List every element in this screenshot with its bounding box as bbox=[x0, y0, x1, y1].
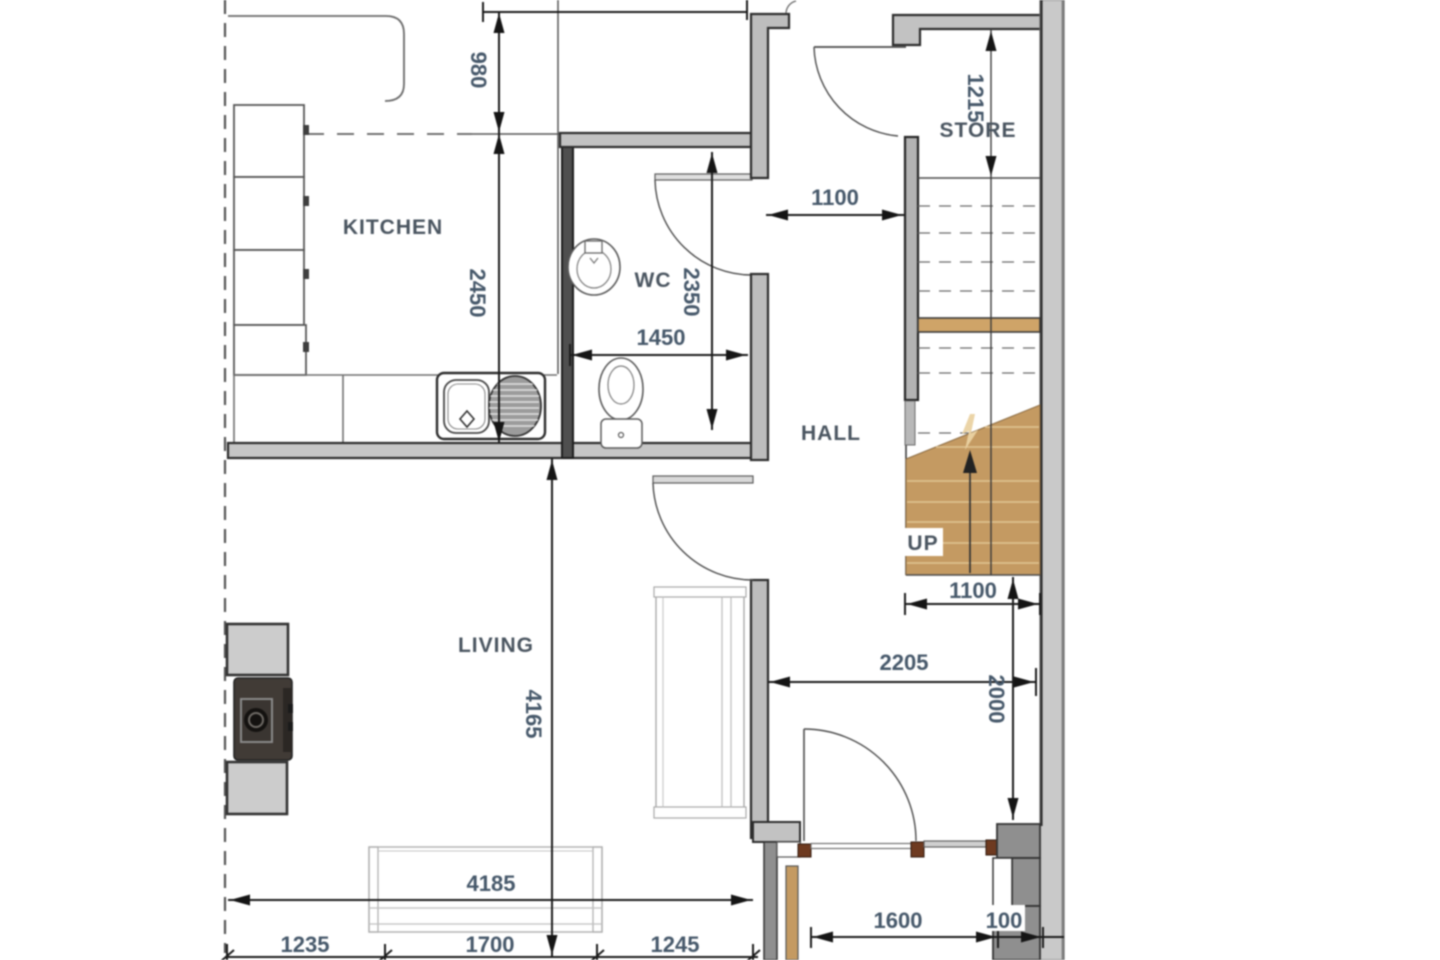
svg-text:WC: WC bbox=[635, 269, 672, 292]
svg-text:1600: 1600 bbox=[874, 908, 923, 933]
svg-text:100: 100 bbox=[986, 908, 1023, 933]
svg-text:4165: 4165 bbox=[521, 690, 546, 739]
svg-text:LIVING: LIVING bbox=[458, 634, 534, 657]
svg-text:2205: 2205 bbox=[880, 650, 929, 675]
svg-text:1215: 1215 bbox=[963, 74, 988, 123]
svg-text:1700: 1700 bbox=[466, 932, 515, 957]
svg-text:2350: 2350 bbox=[679, 268, 704, 317]
svg-text:1245: 1245 bbox=[651, 932, 700, 957]
svg-text:HALL: HALL bbox=[801, 422, 861, 445]
svg-text:2450: 2450 bbox=[465, 269, 490, 318]
svg-text:4185: 4185 bbox=[467, 871, 516, 896]
svg-text:1100: 1100 bbox=[949, 578, 997, 603]
svg-text:2000: 2000 bbox=[984, 675, 1009, 724]
svg-text:1450: 1450 bbox=[637, 325, 686, 350]
svg-text:KITCHEN: KITCHEN bbox=[343, 216, 443, 239]
svg-text:1100: 1100 bbox=[811, 185, 859, 210]
svg-text:UP: UP bbox=[907, 532, 938, 555]
svg-text:1235: 1235 bbox=[281, 932, 330, 957]
svg-text:980: 980 bbox=[466, 52, 491, 89]
